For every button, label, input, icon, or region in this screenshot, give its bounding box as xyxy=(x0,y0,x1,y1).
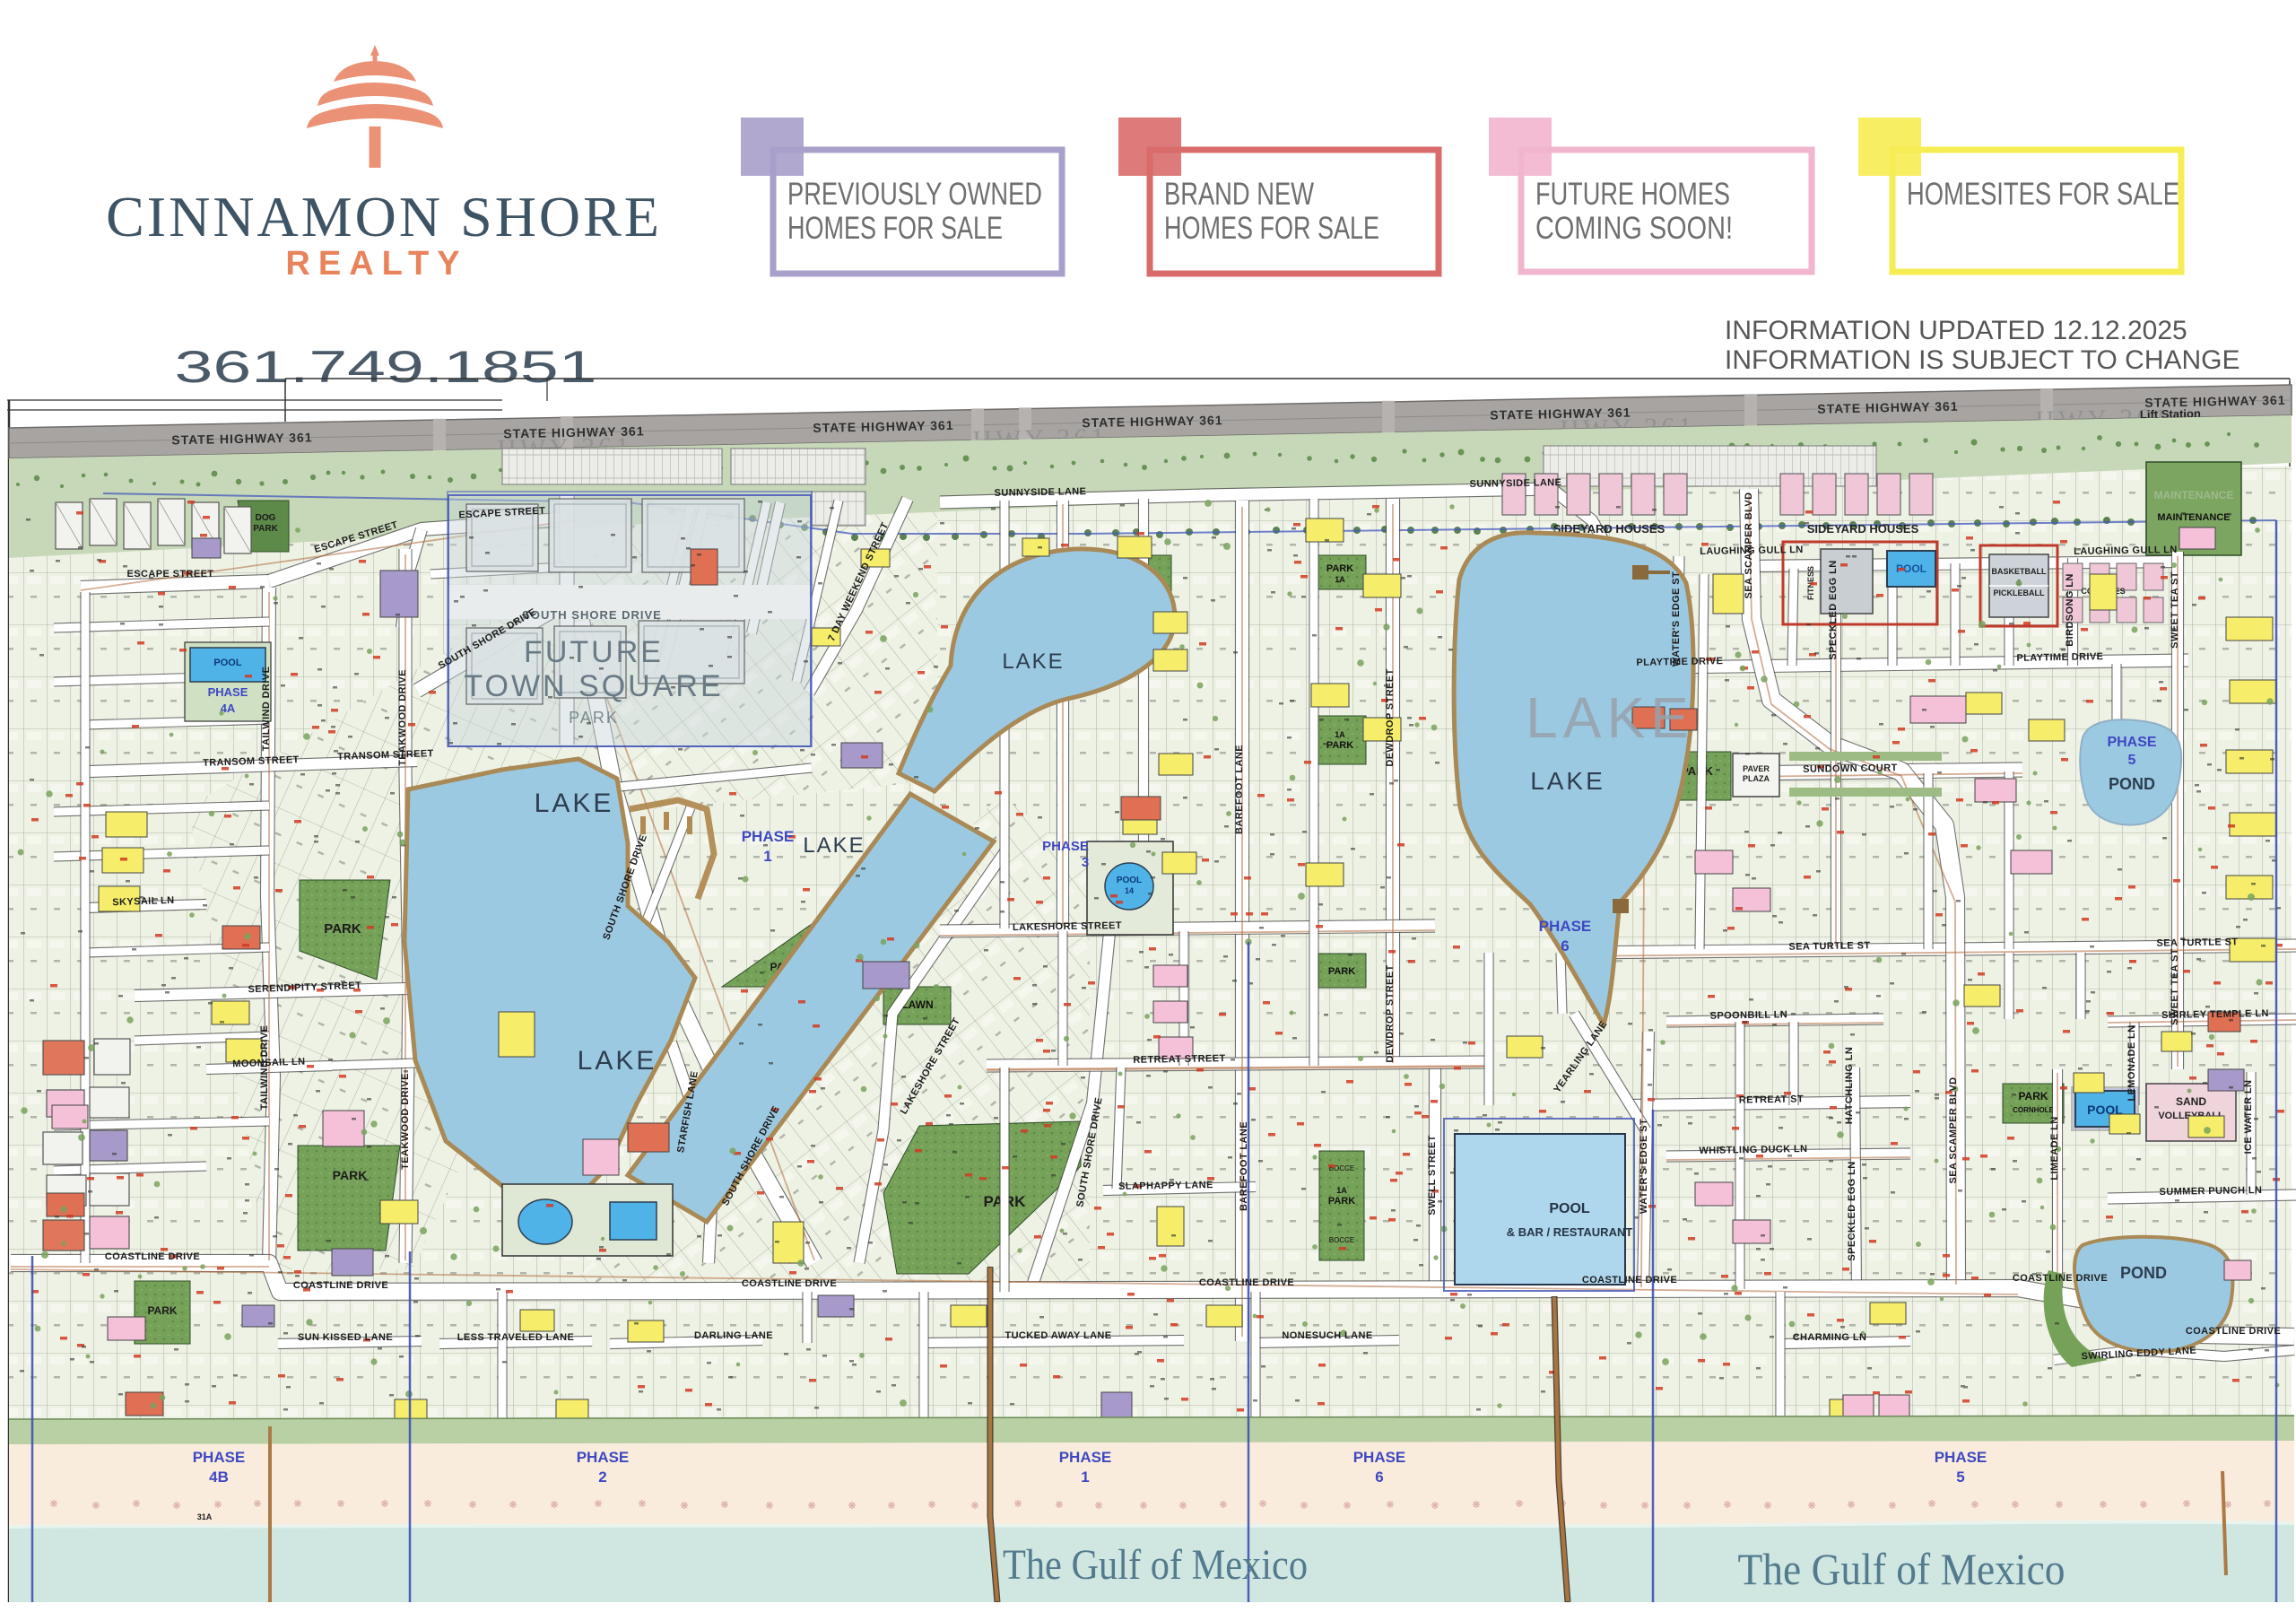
svg-text:PARK: PARK xyxy=(569,709,619,727)
svg-text:❋: ❋ xyxy=(1640,1501,1648,1512)
svg-text:CORNHOLE: CORNHOLE xyxy=(2013,1106,2054,1114)
svg-text:BIRDSONG LN: BIRDSONG LN xyxy=(2065,573,2075,646)
svg-text:❋: ❋ xyxy=(1683,1501,1691,1512)
svg-text:SIDEYARD HOUSES: SIDEYARD HOUSES xyxy=(1807,522,1919,536)
svg-text:POOL: POOL xyxy=(1549,1201,1590,1216)
svg-text:& BAR / RESTAURANT: & BAR / RESTAURANT xyxy=(1507,1225,1633,1239)
svg-text:❋: ❋ xyxy=(887,1501,895,1512)
svg-text:❋: ❋ xyxy=(2263,1499,2271,1510)
svg-text:SOUTH SHORE DRIVE: SOUTH SHORE DRIVE xyxy=(522,608,662,622)
svg-text:MAINTENANCE: MAINTENANCE xyxy=(2157,512,2230,523)
svg-text:PHASE: PHASE xyxy=(1935,1449,1987,1466)
svg-text:INFORMATION UPDATED 12.12.2025: INFORMATION UPDATED 12.12.2025 xyxy=(1725,316,2187,345)
svg-text:WHISTLING DUCK LN: WHISTLING DUCK LN xyxy=(1699,1144,1807,1156)
svg-text:BAREFOOT LANE: BAREFOOT LANE xyxy=(1234,745,1245,834)
svg-text:❋: ❋ xyxy=(1055,1500,1063,1511)
svg-text:DEWDROP STREET: DEWDROP STREET xyxy=(1385,668,1396,766)
svg-text:5: 5 xyxy=(2128,753,2136,768)
svg-text:COASTLINE DRIVE: COASTLINE DRIVE xyxy=(1199,1277,1294,1288)
svg-text:POOL: POOL xyxy=(1117,876,1142,885)
svg-text:TUCKED AWAY LANE: TUCKED AWAY LANE xyxy=(1004,1330,1111,1341)
svg-text:31A: 31A xyxy=(197,1512,213,1521)
svg-text:❋: ❋ xyxy=(509,1500,517,1511)
svg-text:❋: ❋ xyxy=(1178,1501,1187,1512)
svg-text:❋: ❋ xyxy=(2139,1500,2147,1511)
svg-text:SWEET TEA ST: SWEET TEA ST xyxy=(2170,948,2180,1025)
svg-text:COMING SOON!: COMING SOON! xyxy=(1535,211,1733,246)
svg-text:14: 14 xyxy=(1125,886,1134,895)
svg-text:SUNNYSIDE LANE: SUNNYSIDE LANE xyxy=(994,486,1086,499)
svg-text:COASTLINE DRIVE: COASTLINE DRIVE xyxy=(105,1251,200,1262)
svg-text:1A: 1A xyxy=(1335,730,1345,739)
svg-text:PHASE: PHASE xyxy=(1539,918,1592,935)
svg-text:TEAKWOOD DRIVE: TEAKWOOD DRIVE xyxy=(400,1073,411,1170)
svg-text:❋: ❋ xyxy=(1515,1499,1523,1510)
svg-text:SEA TURTLE ST: SEA TURTLE ST xyxy=(1788,940,1870,953)
svg-text:SKYSAIL LN: SKYSAIL LN xyxy=(112,895,175,908)
svg-text:WATER'S EDGE ST: WATER'S EDGE ST xyxy=(1639,1119,1649,1214)
svg-text:1: 1 xyxy=(1081,1468,1089,1486)
svg-text:❋: ❋ xyxy=(970,1501,978,1512)
svg-text:❋: ❋ xyxy=(2055,1500,2063,1511)
svg-text:PHASE: PHASE xyxy=(742,828,795,845)
svg-text:❋: ❋ xyxy=(1300,1501,1308,1512)
svg-text:PHASE: PHASE xyxy=(577,1449,630,1466)
svg-text:The Gulf of Mexico: The Gulf of Mexico xyxy=(1003,1541,1308,1589)
svg-text:LAKE: LAKE xyxy=(1002,649,1064,674)
svg-text:POND: POND xyxy=(2109,775,2155,793)
svg-text:361.749.1851: 361.749.1851 xyxy=(175,342,597,392)
svg-text:SWEET TEA ST: SWEET TEA ST xyxy=(2170,571,2180,649)
svg-text:PARK: PARK xyxy=(1326,740,1353,751)
svg-text:❋: ❋ xyxy=(594,1499,602,1510)
svg-text:❋: ❋ xyxy=(2011,1500,2019,1511)
svg-text:❋: ❋ xyxy=(1386,1500,1394,1511)
svg-text:SUN KISSED LANE: SUN KISSED LANE xyxy=(298,1332,393,1343)
svg-text:FUTURE: FUTURE xyxy=(524,635,664,669)
svg-text:COASTLINE DRIVE: COASTLINE DRIVE xyxy=(2186,1326,2281,1337)
svg-text:❋: ❋ xyxy=(293,1499,301,1510)
svg-text:STATE HIGHWAY 361: STATE HIGHWAY 361 xyxy=(813,418,954,435)
svg-text:COASTLINE DRIVE: COASTLINE DRIVE xyxy=(1582,1275,1677,1285)
svg-text:❋: ❋ xyxy=(807,1501,815,1512)
svg-text:❋: ❋ xyxy=(1139,1501,1147,1512)
svg-text:PREVIOUSLY OWNED: PREVIOUSLY OWNED xyxy=(787,177,1042,212)
svg-text:❋: ❋ xyxy=(423,1499,431,1510)
svg-text:INFORMATION IS SUBJECT TO CHAN: INFORMATION IS SUBJECT TO CHANGE xyxy=(1725,345,2240,375)
svg-text:BAREFOOT LANE: BAREFOOT LANE xyxy=(1239,1121,1249,1211)
svg-text:❋: ❋ xyxy=(253,1499,261,1510)
svg-text:SLAPHAPPY LANE: SLAPHAPPY LANE xyxy=(1118,1180,1213,1192)
svg-text:POND: POND xyxy=(2120,1264,2167,1282)
svg-text:❋: ❋ xyxy=(848,1501,856,1512)
svg-text:HOMES FOR SALE: HOMES FOR SALE xyxy=(1164,211,1379,246)
svg-text:DOG: DOG xyxy=(256,513,276,523)
svg-text:LAKESHORE STREET: LAKESHORE STREET xyxy=(1013,920,1122,933)
svg-text:❋: ❋ xyxy=(1970,1500,1979,1511)
svg-text:PARK: PARK xyxy=(253,524,278,534)
svg-text:❋: ❋ xyxy=(1888,1501,1896,1512)
svg-text:HATCHLING LN: HATCHLING LN xyxy=(1844,1047,1855,1124)
svg-text:❋: ❋ xyxy=(680,1501,688,1512)
svg-text:LESS TRAVELED LANE: LESS TRAVELED LANE xyxy=(457,1332,574,1343)
svg-text:CINNAMON SHORE: CINNAMON SHORE xyxy=(106,185,662,248)
svg-text:SWELL STREET: SWELL STREET xyxy=(1427,1135,1438,1216)
svg-text:HOMESITES FOR SALE: HOMESITES FOR SALE xyxy=(1907,177,2179,212)
svg-text:TAILWIND DRIVE: TAILWIND DRIVE xyxy=(261,667,272,752)
svg-text:POOL: POOL xyxy=(213,658,241,668)
svg-text:❋: ❋ xyxy=(1723,1500,1731,1511)
svg-text:NONESUCH LANE: NONESUCH LANE xyxy=(1282,1330,1372,1341)
svg-text:SAND: SAND xyxy=(2176,1095,2206,1108)
svg-text:DEWDROP STREET: DEWDROP STREET xyxy=(1385,964,1396,1062)
svg-text:PARK: PARK xyxy=(1328,1196,1355,1207)
svg-text:SPOONBILL LN: SPOONBILL LN xyxy=(1710,1009,1788,1022)
svg-text:PARK: PARK xyxy=(147,1304,177,1317)
svg-text:STATE HIGHWAY 361: STATE HIGHWAY 361 xyxy=(171,430,313,447)
svg-text:❋: ❋ xyxy=(468,1500,476,1511)
svg-text:❋: ❋ xyxy=(1343,1501,1351,1512)
svg-text:MAINTENANCE: MAINTENANCE xyxy=(2154,489,2234,501)
svg-text:PAVER: PAVER xyxy=(1743,764,1770,773)
svg-text:LIMEADE LN: LIMEADE LN xyxy=(2049,1116,2060,1180)
svg-text:PLAZA: PLAZA xyxy=(1743,774,1770,783)
svg-text:❋: ❋ xyxy=(1013,1499,1022,1510)
svg-text:6: 6 xyxy=(1561,937,1569,954)
svg-text:PARK: PARK xyxy=(2018,1090,2048,1102)
svg-text:SPECKLED EGG LN: SPECKLED EGG LN xyxy=(1847,1161,1857,1260)
svg-text:BASKETBALL: BASKETBALL xyxy=(1992,567,2047,576)
svg-text:PHASE: PHASE xyxy=(2107,735,2156,750)
svg-text:❋: ❋ xyxy=(91,1501,100,1512)
svg-text:COASTLINE DRIVE: COASTLINE DRIVE xyxy=(742,1278,837,1289)
svg-text:SUMMER PUNCH LN: SUMMER PUNCH LN xyxy=(2159,1185,2262,1198)
svg-text:❋: ❋ xyxy=(638,1499,646,1510)
svg-text:REALTY: REALTY xyxy=(285,245,467,283)
svg-text:❋: ❋ xyxy=(1219,1500,1227,1511)
svg-text:1A: 1A xyxy=(1336,1186,1347,1195)
svg-text:❋: ❋ xyxy=(172,1501,180,1512)
svg-text:❋: ❋ xyxy=(1807,1501,1815,1512)
svg-text:❋: ❋ xyxy=(2182,1499,2190,1510)
svg-text:LAKE: LAKE xyxy=(578,1046,657,1076)
svg-text:PHASE: PHASE xyxy=(1042,839,1089,854)
svg-text:❋: ❋ xyxy=(2099,1500,2107,1511)
svg-text:HOMES FOR SALE: HOMES FOR SALE xyxy=(787,211,1003,246)
svg-text:SUNDOWN COURT: SUNDOWN COURT xyxy=(1803,763,1898,775)
svg-text:PHASE: PHASE xyxy=(193,1449,246,1466)
svg-text:❋: ❋ xyxy=(1431,1501,1439,1512)
svg-text:LAKE: LAKE xyxy=(1530,767,1605,795)
svg-text:PARK: PARK xyxy=(1326,563,1353,574)
svg-text:❋: ❋ xyxy=(765,1501,773,1512)
svg-text:PARK: PARK xyxy=(1328,966,1355,977)
svg-text:❋: ❋ xyxy=(380,1499,388,1510)
svg-text:❋: ❋ xyxy=(1094,1501,1102,1512)
svg-text:❋: ❋ xyxy=(720,1500,728,1511)
svg-text:❋: ❋ xyxy=(550,1500,558,1511)
svg-text:The Gulf of Mexico: The Gulf of Mexico xyxy=(1738,1544,2066,1594)
svg-text:❋: ❋ xyxy=(1763,1501,1771,1512)
svg-text:LAKE: LAKE xyxy=(535,789,614,818)
svg-text:4B: 4B xyxy=(209,1468,229,1486)
svg-text:ICE WATER LN: ICE WATER LN xyxy=(2243,1080,2254,1155)
svg-text:❋: ❋ xyxy=(1599,1501,1607,1512)
svg-text:PHASE: PHASE xyxy=(208,685,248,699)
svg-text:SEA SCAMPER BLVD: SEA SCAMPER BLVD xyxy=(1744,492,1754,599)
svg-text:COASTLINE DRIVE: COASTLINE DRIVE xyxy=(293,1280,388,1291)
svg-text:RETREAT STREET: RETREAT STREET xyxy=(1133,1053,1225,1066)
svg-text:PHASE: PHASE xyxy=(1353,1449,1406,1466)
svg-text:WATER'S EDGE ST: WATER'S EDGE ST xyxy=(1671,571,1682,667)
svg-text:LEMONADE LN: LEMONADE LN xyxy=(2126,1024,2137,1101)
svg-text:RETREAT ST: RETREAT ST xyxy=(1739,1094,1804,1105)
svg-text:STATE HIGHWAY 361: STATE HIGHWAY 361 xyxy=(1817,399,1959,416)
svg-text:PLAYTIME DRIVE: PLAYTIME DRIVE xyxy=(2016,651,2103,664)
svg-text:5: 5 xyxy=(1956,1468,1964,1486)
svg-text:CHARMING LN: CHARMING LN xyxy=(1793,1332,1867,1343)
svg-text:SEA TURTLE ST: SEA TURTLE ST xyxy=(2156,937,2238,949)
svg-text:3: 3 xyxy=(1082,855,1089,870)
svg-text:PARK: PARK xyxy=(324,921,361,937)
svg-text:❋: ❋ xyxy=(1258,1499,1266,1510)
svg-text:COASTLINE DRIVE: COASTLINE DRIVE xyxy=(2013,1273,2108,1284)
svg-text:SUNNYSIDE LANE: SUNNYSIDE LANE xyxy=(1469,477,1561,490)
svg-text:TOWN SQUARE: TOWN SQUARE xyxy=(464,669,723,703)
svg-text:❋: ❋ xyxy=(1927,1499,1935,1510)
svg-text:❋: ❋ xyxy=(49,1499,57,1510)
svg-text:PICKLEBALL: PICKLEBALL xyxy=(1994,588,2045,597)
svg-text:LAUGHING GULL LN: LAUGHING GULL LN xyxy=(2074,545,2178,557)
svg-text:❋: ❋ xyxy=(132,1499,140,1510)
svg-text:SEA SCAMPER BLVD: SEA SCAMPER BLVD xyxy=(1948,1077,1959,1184)
svg-text:BRAND NEW: BRAND NEW xyxy=(1164,177,1314,212)
svg-text:❋: ❋ xyxy=(927,1500,935,1511)
svg-text:LAKE: LAKE xyxy=(803,833,865,858)
svg-text:PHASE: PHASE xyxy=(1059,1449,1112,1466)
svg-text:DARLING LANE: DARLING LANE xyxy=(694,1330,773,1341)
svg-text:6: 6 xyxy=(1375,1468,1383,1486)
svg-text:❋: ❋ xyxy=(1847,1500,1855,1511)
svg-text:1: 1 xyxy=(763,848,771,865)
svg-text:LAKE: LAKE xyxy=(1526,685,1694,750)
svg-text:SPECKLED EGG LN: SPECKLED EGG LN xyxy=(1828,560,1839,659)
svg-text:PARK: PARK xyxy=(333,1168,368,1182)
svg-text:❋: ❋ xyxy=(213,1500,222,1511)
svg-text:FUTURE HOMES: FUTURE HOMES xyxy=(1535,177,1730,212)
svg-text:2: 2 xyxy=(598,1468,606,1486)
svg-text:4A: 4A xyxy=(221,702,236,715)
svg-text:❋: ❋ xyxy=(336,1499,344,1510)
svg-text:ESCAPE STREET: ESCAPE STREET xyxy=(127,569,214,580)
svg-text:❋: ❋ xyxy=(1472,1500,1480,1511)
svg-text:BOCCE: BOCCE xyxy=(1329,1236,1354,1244)
